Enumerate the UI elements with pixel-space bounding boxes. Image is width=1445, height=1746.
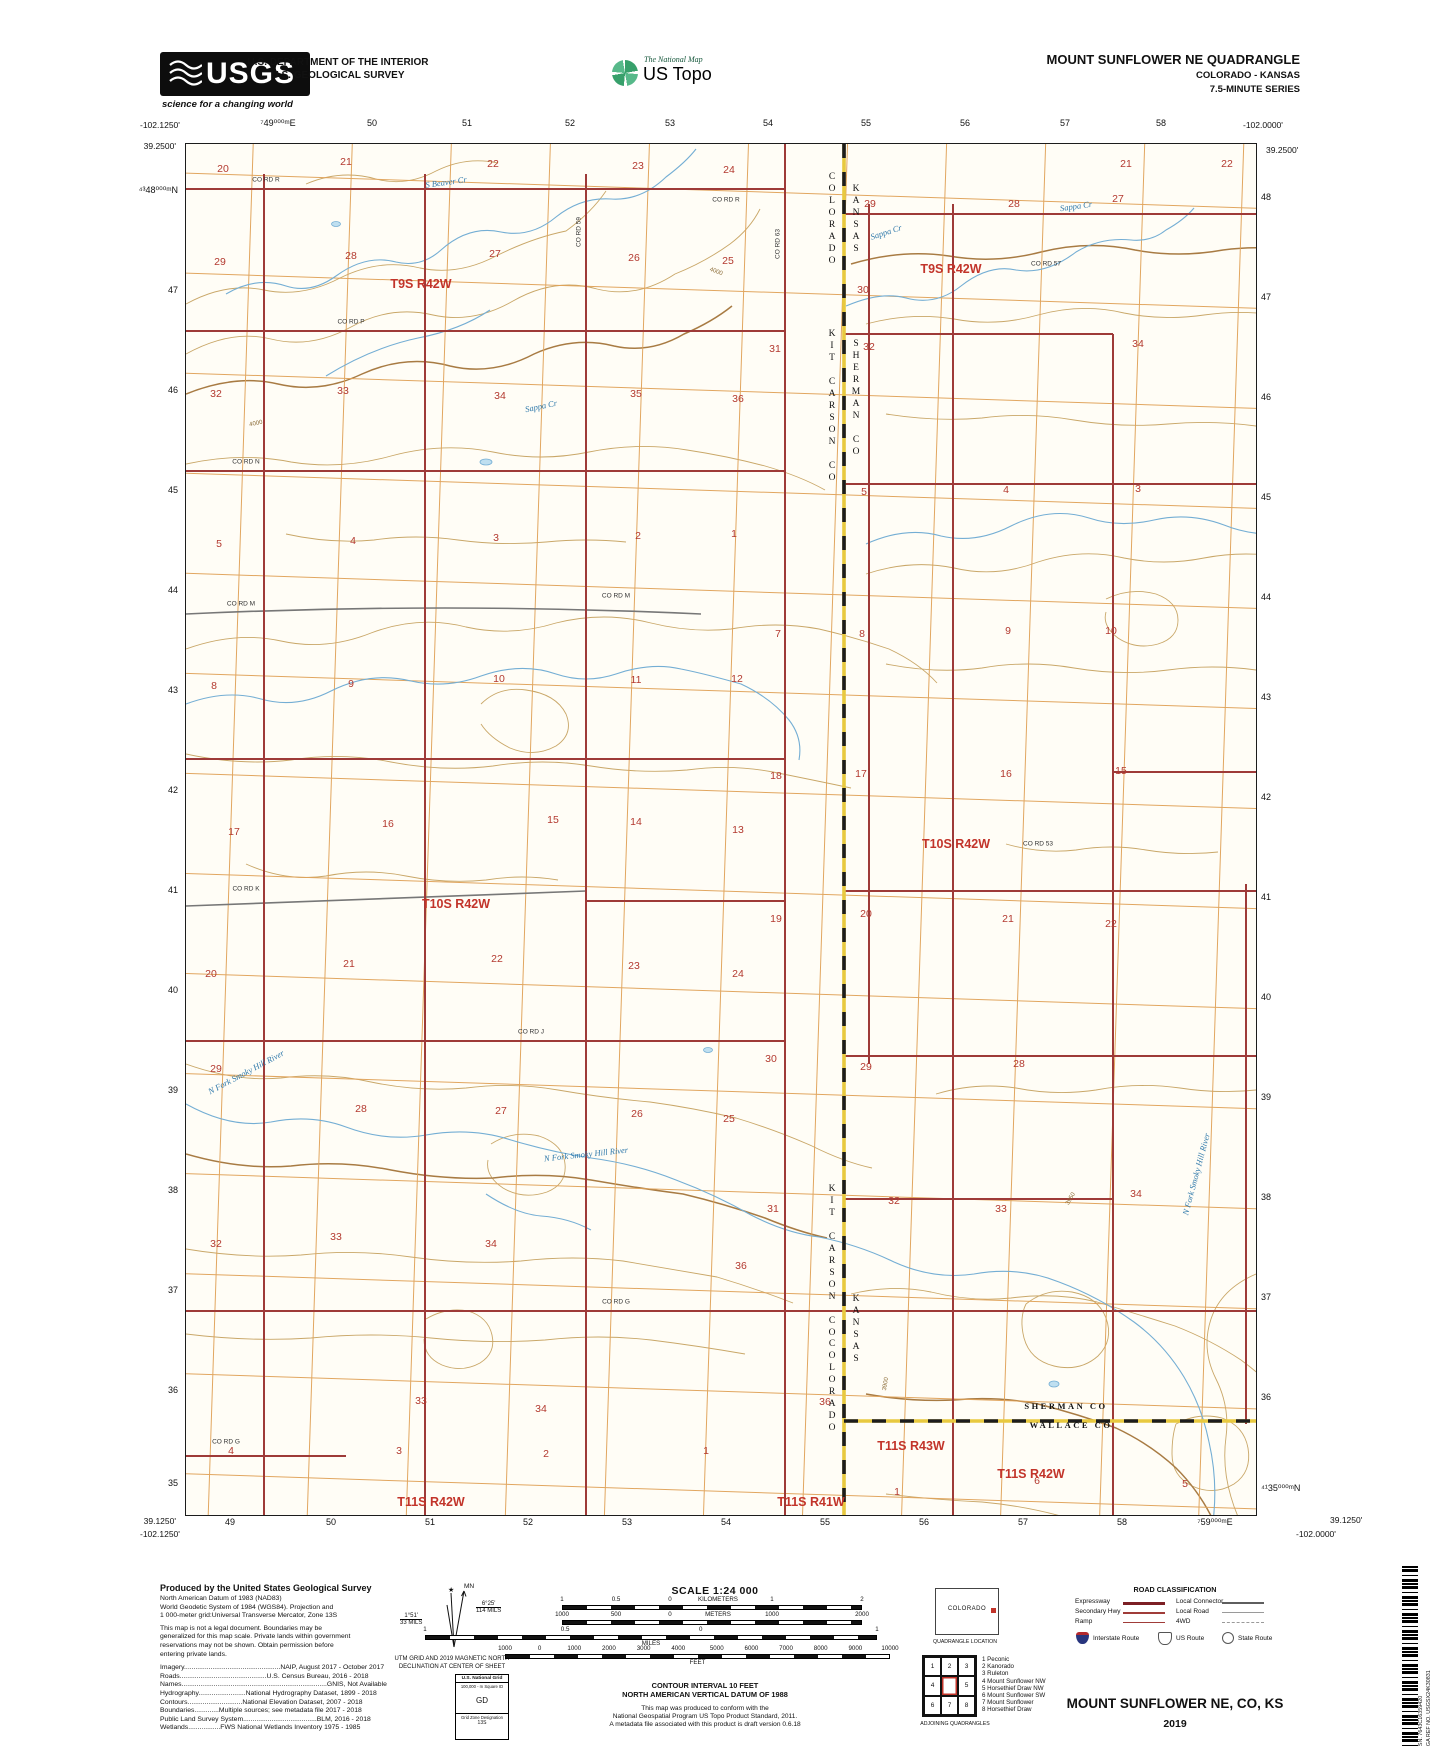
state-label: KANSAS bbox=[851, 184, 861, 256]
tr-label: T11S R41W bbox=[777, 1495, 844, 1509]
sec-label: 24 bbox=[732, 968, 744, 980]
county-label: SHERMAN CO bbox=[1024, 1401, 1107, 1411]
scale-tick: 500 bbox=[611, 1611, 621, 1618]
grid-label-left: 41 bbox=[106, 885, 178, 895]
scale-unit: FEET bbox=[690, 1659, 706, 1666]
usng-square-id: GD bbox=[456, 1696, 508, 1705]
usng-zone-label: Grid Zone Designation bbox=[456, 1713, 508, 1720]
sec-label: 5 bbox=[1182, 1478, 1188, 1490]
state-label: SHERMAN CO bbox=[851, 339, 861, 459]
int-shield-icon bbox=[1076, 1632, 1089, 1644]
sec-label: 29 bbox=[210, 1063, 222, 1075]
road-label: CO RD R bbox=[252, 177, 279, 184]
adjoining-quad-name: 4 Mount Sunflower NW bbox=[982, 1678, 1092, 1685]
sec-label: 5 bbox=[861, 486, 867, 498]
sec-label: 36 bbox=[735, 1260, 747, 1272]
grid-label-bottom: 52 bbox=[523, 1517, 533, 1527]
grid-label-right: 43 bbox=[1261, 692, 1271, 702]
scale-tick: 0 bbox=[668, 1611, 671, 1618]
conformance-line: National Geospatial Program US Topo Prod… bbox=[505, 1713, 905, 1721]
grid-label-left: 44 bbox=[106, 585, 178, 595]
state-label: KIT CARSON CO bbox=[827, 1184, 837, 1340]
road-classification-title: ROAD CLASSIFICATION bbox=[1075, 1585, 1275, 1594]
adjoining-cell: 5 bbox=[958, 1676, 975, 1695]
state-name: COLORADO bbox=[936, 1606, 998, 1612]
road-class-row: Expressway bbox=[1075, 1598, 1165, 1608]
grid-label-bottom: 49 bbox=[225, 1517, 235, 1527]
grid-label-bottom: 57 bbox=[1018, 1517, 1028, 1527]
sec-label: 4 bbox=[350, 535, 356, 547]
grid-label-right: 39 bbox=[1261, 1092, 1271, 1102]
road-label: CO RD K bbox=[232, 886, 259, 893]
road-class-sample-fourwd bbox=[1222, 1622, 1264, 1623]
scale-tick: 0 bbox=[699, 1626, 702, 1633]
grid-label-top: 58 bbox=[1156, 118, 1166, 128]
sec-label: 11 bbox=[631, 674, 642, 686]
grid-label-left: 46 bbox=[106, 385, 178, 395]
road-label: CO RD P bbox=[337, 319, 364, 326]
grid-label-left: 35 bbox=[106, 1478, 178, 1488]
adjoining-quad-name: 3 Ruleton bbox=[982, 1670, 1092, 1677]
scale-tick: 6000 bbox=[745, 1645, 759, 1652]
state-location-box: COLORADO bbox=[935, 1588, 999, 1635]
state-route-shield-item: State Route bbox=[1222, 1632, 1272, 1644]
sec-label: 19 bbox=[770, 913, 782, 925]
scale-tick: 4000 bbox=[671, 1645, 685, 1652]
sec-label: 1 bbox=[703, 1445, 709, 1457]
road-class-row: Local Road bbox=[1176, 1608, 1264, 1618]
sec-label: 29 bbox=[864, 198, 876, 210]
shield-label: Interstate Route bbox=[1093, 1635, 1139, 1642]
road-class-label: Secondary Hwy bbox=[1075, 1608, 1121, 1615]
dept-line1: U.S. DEPARTMENT OF THE INTERIOR bbox=[238, 56, 438, 69]
quad-series: 7.5-MINUTE SERIES bbox=[940, 84, 1300, 95]
road-label: CO RD G bbox=[602, 1299, 630, 1306]
scale-unit: KILOMETERS bbox=[698, 1596, 738, 1603]
grid-label-left: 39 bbox=[106, 1085, 178, 1095]
tr-label: T9S R42W bbox=[920, 262, 981, 276]
grid-label-bottom: 55 bbox=[820, 1517, 830, 1527]
usgs-tagline: science for a changing world bbox=[162, 99, 293, 110]
quad-location-marker bbox=[991, 1608, 996, 1613]
sec-label: 28 bbox=[345, 250, 357, 262]
usng-title: U.S. National Grid bbox=[456, 1675, 508, 1683]
scale-tick: 1 bbox=[875, 1626, 878, 1633]
int-route-shield-item: Interstate Route bbox=[1076, 1632, 1139, 1644]
scale-tick: 10000 bbox=[881, 1645, 898, 1652]
grid-label-bottom: 56 bbox=[919, 1517, 929, 1527]
sec-label: 26 bbox=[631, 1108, 643, 1120]
state-label: COLORADO bbox=[827, 172, 837, 268]
sec-label: 33 bbox=[415, 1395, 427, 1407]
road-class-row: Secondary Hwy bbox=[1075, 1608, 1165, 1618]
svg-text:★: ★ bbox=[448, 1586, 454, 1594]
sec-label: 30 bbox=[857, 284, 869, 296]
sec-label: 3 bbox=[1135, 483, 1141, 495]
sec-label: 21 bbox=[343, 958, 355, 970]
sec-label: 2 bbox=[543, 1448, 549, 1460]
road-class-sample-ramp bbox=[1123, 1622, 1165, 1623]
state-label: KIT CARSON CO bbox=[827, 329, 837, 485]
sec-label: 4 bbox=[1003, 484, 1009, 496]
grid-label-left: 43 bbox=[106, 685, 178, 695]
adjoining-cell: 8 bbox=[958, 1696, 975, 1715]
water-label: N Fork Smoky Hill River bbox=[543, 1145, 628, 1164]
quad-name: MOUNT SUNFLOWER NE QUADRANGLE bbox=[940, 52, 1300, 67]
grid-label-right: 48 bbox=[1261, 192, 1271, 202]
corner-tr-lon: -102.0000' bbox=[1243, 120, 1283, 130]
road-class-sample-secondary bbox=[1123, 1612, 1165, 1614]
grid-label-right: 40 bbox=[1261, 992, 1271, 1002]
grid-label-left: 38 bbox=[106, 1185, 178, 1195]
scale-bar-miles: 10.501MILES bbox=[425, 1626, 877, 1646]
adjoining-quad-name: 2 Kanorado bbox=[982, 1663, 1092, 1670]
water-label: Sappa Cr bbox=[524, 398, 558, 415]
grid-label-bottom: 54 bbox=[721, 1517, 731, 1527]
shield-label: US Route bbox=[1176, 1635, 1204, 1642]
sec-label: 23 bbox=[628, 960, 640, 972]
road-class-label: 4WD bbox=[1176, 1618, 1190, 1625]
scale-tick: 0 bbox=[668, 1596, 671, 1603]
state-label: KANSAS bbox=[851, 1294, 861, 1366]
sec-label: 32 bbox=[210, 388, 222, 400]
scale-bar-line bbox=[562, 1620, 862, 1626]
barcode-nsn: NSN. 7643C16359420 bbox=[1418, 1696, 1424, 1746]
grid-label-right: 41 bbox=[1261, 892, 1271, 902]
barcode bbox=[1402, 1566, 1418, 1746]
scale-tick: 8000 bbox=[814, 1645, 828, 1652]
sec-label: 17 bbox=[855, 768, 867, 780]
sec-label: 18 bbox=[770, 770, 782, 782]
road-label: CO RD 63 bbox=[775, 229, 782, 259]
road-class-row: Ramp bbox=[1075, 1618, 1165, 1628]
sheet-title-block: MOUNT SUNFLOWER NE, CO, KS 2019 bbox=[1060, 1696, 1290, 1730]
sheet-year: 2019 bbox=[1060, 1718, 1290, 1730]
grid-label-bottom: 50 bbox=[326, 1517, 336, 1527]
data-source-line: Names...................................… bbox=[160, 1681, 470, 1690]
sec-label: 34 bbox=[494, 390, 506, 402]
sec-label: 35 bbox=[630, 388, 642, 400]
corner-br-lat: 39.1250' bbox=[1330, 1515, 1362, 1525]
grid-label-top: 57 bbox=[1060, 118, 1070, 128]
scale-tick: 0 bbox=[538, 1645, 541, 1652]
scale-tick: 3000 bbox=[637, 1645, 651, 1652]
sec-label: 17 bbox=[228, 826, 240, 838]
sec-label: 22 bbox=[1105, 918, 1117, 930]
sec-label: 5 bbox=[216, 538, 222, 550]
sec-label: 3 bbox=[493, 532, 499, 544]
grid-label-top: 54 bbox=[763, 118, 773, 128]
grid-label-left: 47 bbox=[106, 285, 178, 295]
sec-label: 28 bbox=[1013, 1058, 1025, 1070]
sec-label: 23 bbox=[632, 160, 644, 172]
sec-label: 34 bbox=[535, 1403, 547, 1415]
water-label: Sappa Cr bbox=[869, 222, 903, 242]
usng-zone: 13S bbox=[456, 1720, 508, 1726]
road-class-sample-local bbox=[1222, 1612, 1264, 1613]
contour-interval-note: CONTOUR INTERVAL 10 FEET NORTH AMERICAN … bbox=[505, 1681, 905, 1699]
corner-br-lon: -102.0000' bbox=[1296, 1529, 1336, 1539]
sec-label: 26 bbox=[628, 252, 640, 264]
tr-label: T10S R42W bbox=[922, 837, 990, 851]
water-label: S Beaver Cr bbox=[425, 174, 468, 190]
sec-label: 9 bbox=[348, 678, 354, 690]
scale-tick: 9000 bbox=[848, 1645, 862, 1652]
gn-declination-value: 1°51' 33 MILS bbox=[400, 1613, 422, 1626]
sec-label: 15 bbox=[547, 814, 559, 826]
quad-states: COLORADO - KANSAS bbox=[940, 70, 1300, 81]
conformance-line: A metadata file associated with this pro… bbox=[505, 1721, 905, 1729]
scale-tick: 1000 bbox=[555, 1611, 569, 1618]
barcode-nga-ref: NGA REF NO. USGSX24K30831 bbox=[1426, 1670, 1432, 1746]
road-label: CO RD R bbox=[712, 197, 739, 204]
scale-tick: 5000 bbox=[710, 1645, 724, 1652]
adjoining-quad-name: 5 Horsethief Draw NW bbox=[982, 1685, 1092, 1692]
usgs-topo-sheet: USGS science for a changing world U.S. D… bbox=[0, 0, 1445, 1746]
grid-label-top: 51 bbox=[462, 118, 472, 128]
grid-label-left: ⁴³48⁰⁰⁰ᵐN bbox=[106, 185, 178, 196]
sec-label: 16 bbox=[1000, 768, 1012, 780]
sec-label: 4 bbox=[228, 1445, 234, 1457]
sec-label: 29 bbox=[860, 1061, 872, 1073]
sec-label: 34 bbox=[485, 1238, 497, 1250]
scale-tick: 0.5 bbox=[612, 1596, 621, 1603]
scale-tick: 1 bbox=[770, 1596, 773, 1603]
sec-label: 31 bbox=[767, 1203, 779, 1215]
sec-label: 25 bbox=[722, 255, 734, 267]
road-label: CO RD 57 bbox=[1031, 261, 1061, 268]
conformance-line: This map was produced to conform with th… bbox=[505, 1705, 905, 1713]
adjoining-cell: 7 bbox=[941, 1696, 958, 1715]
grid-label-top: 55 bbox=[861, 118, 871, 128]
county-label: WALLACE CO bbox=[1030, 1420, 1113, 1430]
data-source-line: Boundaries.............Multiple sources;… bbox=[160, 1707, 470, 1716]
national-map-icon bbox=[612, 60, 638, 86]
sec-label: 10 bbox=[1105, 625, 1117, 637]
sec-label: 8 bbox=[211, 680, 217, 692]
grid-label-right: ⁴¹35⁰⁰⁰ᵐN bbox=[1261, 1483, 1300, 1494]
scale-tick: 2 bbox=[860, 1596, 863, 1603]
elev-label: 3900 bbox=[882, 1377, 890, 1391]
elev-label: 4000 bbox=[249, 420, 263, 429]
sec-label: 30 bbox=[765, 1053, 777, 1065]
grid-label-right: 36 bbox=[1261, 1392, 1271, 1402]
national-map-script: The National Map bbox=[644, 55, 703, 64]
scale-bar-feet: 1000010002000300040005000600070008000900… bbox=[505, 1645, 890, 1665]
sec-label: 27 bbox=[495, 1105, 507, 1117]
data-source-line: Hydrography.........................Nati… bbox=[160, 1690, 470, 1699]
grid-label-left: 42 bbox=[106, 785, 178, 795]
scale-tick: 0.5 bbox=[561, 1626, 570, 1633]
quadrangle-title-block: MOUNT SUNFLOWER NE QUADRANGLE COLORADO -… bbox=[940, 52, 1300, 95]
grid-label-right: 37 bbox=[1261, 1292, 1271, 1302]
road-label: CO RD N bbox=[232, 459, 259, 466]
magnetic-north-label: MN bbox=[464, 1583, 474, 1590]
grid-label-top: 56 bbox=[960, 118, 970, 128]
state-shield-icon bbox=[1222, 1632, 1234, 1644]
grid-label-right: 42 bbox=[1261, 792, 1271, 802]
sec-label: 32 bbox=[863, 341, 875, 353]
conformance-note: This map was produced to conform with th… bbox=[505, 1705, 905, 1730]
us-topo-logo-text: US Topo bbox=[643, 64, 712, 85]
road-class-sample-expressway bbox=[1123, 1602, 1165, 1605]
road-class-sample-connector bbox=[1222, 1602, 1264, 1604]
sheet-title: MOUNT SUNFLOWER NE, CO, KS bbox=[1060, 1696, 1290, 1711]
map-area: 2021222324212229282729282726253132343032… bbox=[185, 143, 1257, 1516]
us-shield-icon bbox=[1158, 1632, 1172, 1645]
sec-label: 27 bbox=[1112, 193, 1124, 205]
road-label: CO RD J bbox=[518, 1029, 544, 1036]
sec-label: 14 bbox=[630, 816, 642, 828]
sec-label: 32 bbox=[888, 1195, 900, 1207]
sec-label: 9 bbox=[1005, 625, 1011, 637]
adjoining-cell: 4 bbox=[924, 1676, 941, 1695]
grid-label-right: 47 bbox=[1261, 292, 1271, 302]
grid-label-bottom: 51 bbox=[425, 1517, 435, 1527]
sec-label: 22 bbox=[1221, 158, 1233, 170]
sec-label: 12 bbox=[731, 673, 743, 685]
sec-label: 1 bbox=[731, 528, 737, 540]
adjoining-cell: 6 bbox=[924, 1696, 941, 1715]
tr-label: T11S R43W bbox=[877, 1439, 944, 1453]
adjoining-quad-name: 1 Peconic bbox=[982, 1656, 1092, 1663]
road-class-label: Ramp bbox=[1075, 1618, 1092, 1625]
route-shields: Interstate RouteUS RouteState Route bbox=[1076, 1632, 1336, 1646]
usng-square-id-label: 100,000 - m Square ID bbox=[456, 1684, 508, 1689]
road-class-label: Local Connector bbox=[1176, 1598, 1223, 1605]
usgs-wave-icon bbox=[168, 57, 202, 92]
sec-label: 10 bbox=[493, 673, 505, 685]
water-label: N Fork Smoky Hill River bbox=[1180, 1132, 1212, 1216]
sec-label: 20 bbox=[217, 163, 229, 175]
road-class-label: Expressway bbox=[1075, 1598, 1110, 1605]
sec-label: 13 bbox=[732, 824, 744, 836]
corner-tr-lat: 39.2500' bbox=[1266, 145, 1298, 155]
corner-bl-lon: -102.1250' bbox=[140, 1529, 180, 1539]
road-label: CO RD G bbox=[212, 1439, 240, 1446]
grid-label-right: 44 bbox=[1261, 592, 1271, 602]
sec-label: 2 bbox=[635, 530, 641, 542]
sec-label: 34 bbox=[1132, 338, 1144, 350]
adjoining-quads-grid: 12345678 bbox=[922, 1655, 977, 1717]
sec-label: 31 bbox=[769, 343, 781, 355]
state-label: COLORADO bbox=[827, 1339, 837, 1435]
data-source-line: Contours.............................Nat… bbox=[160, 1699, 470, 1708]
sec-label: 21 bbox=[1002, 913, 1014, 925]
sec-label: 33 bbox=[330, 1231, 342, 1243]
sec-label: 22 bbox=[487, 158, 499, 170]
grid-label-left: 40 bbox=[106, 985, 178, 995]
sec-label: 27 bbox=[489, 248, 501, 260]
road-class-row: 4WD bbox=[1176, 1618, 1264, 1628]
sec-label: 25 bbox=[723, 1113, 735, 1125]
elev-label: 4000 bbox=[709, 267, 724, 277]
road-class-label: Local Road bbox=[1176, 1608, 1209, 1615]
adjoining-cell-current bbox=[941, 1676, 958, 1695]
map-label-layer: 2021222324212229282729282726253132343032… bbox=[186, 144, 1256, 1515]
data-source-line: Roads...................................… bbox=[160, 1673, 470, 1682]
credits-sources: Imagery.................................… bbox=[160, 1664, 470, 1733]
sec-label: 34 bbox=[1130, 1188, 1142, 1200]
scale-tick: 1 bbox=[423, 1626, 426, 1633]
elev-label: 3950 bbox=[1065, 1192, 1077, 1207]
grid-label-bottom: 58 bbox=[1117, 1517, 1127, 1527]
us-route-shield-item: US Route bbox=[1158, 1632, 1204, 1645]
scale-unit: METERS bbox=[705, 1611, 731, 1618]
sec-label: 36 bbox=[732, 393, 744, 405]
adjoining-quads-caption: ADJOINING QUADRANGLES bbox=[895, 1721, 1015, 1727]
mn-declination-value: 6°25' 114 MILS bbox=[476, 1601, 501, 1614]
grid-label-left: 45 bbox=[106, 485, 178, 495]
department-heading: U.S. DEPARTMENT OF THE INTERIOR U.S. GEO… bbox=[238, 56, 438, 82]
road-label: CO RD M bbox=[602, 593, 630, 600]
grid-label-right: 46 bbox=[1261, 392, 1271, 402]
grid-label-top: 52 bbox=[565, 118, 575, 128]
water-label: Sappa Cr bbox=[1059, 199, 1092, 213]
corner-tl-lon: -102.1250' bbox=[140, 120, 180, 130]
tr-label: T9S R42W bbox=[390, 277, 451, 291]
sec-label: 15 bbox=[1115, 765, 1127, 777]
usng-box: U.S. National Grid 100,000 - m Square ID… bbox=[455, 1674, 509, 1740]
sec-label: 28 bbox=[1008, 198, 1020, 210]
data-source-line: Wetlands.................FWS National We… bbox=[160, 1724, 470, 1733]
adjoining-cell: 2 bbox=[941, 1657, 958, 1676]
corner-bl-lat: 39.1250' bbox=[100, 1516, 176, 1526]
sec-label: 33 bbox=[995, 1203, 1007, 1215]
tr-label: T10S R42W bbox=[422, 897, 490, 911]
road-label: CO RD 59 bbox=[576, 217, 583, 247]
adjoining-cell: 1 bbox=[924, 1657, 941, 1676]
sec-label: 7 bbox=[775, 628, 781, 640]
sec-label: 20 bbox=[860, 908, 872, 920]
sec-label: 28 bbox=[355, 1103, 367, 1115]
grid-label-top: 53 bbox=[665, 118, 675, 128]
corner-tl-lat: 39.2500' bbox=[100, 141, 176, 151]
grid-label-right: 45 bbox=[1261, 492, 1271, 502]
grid-label-left: 37 bbox=[106, 1285, 178, 1295]
sec-label: 3 bbox=[396, 1445, 402, 1457]
sec-label: 32 bbox=[210, 1238, 222, 1250]
sec-label: 20 bbox=[205, 968, 217, 980]
grid-label-top: 50 bbox=[367, 118, 377, 128]
grid-label-bottom: 53 bbox=[622, 1517, 632, 1527]
road-class-row: Local Connector bbox=[1176, 1598, 1264, 1608]
dept-line2: U.S. GEOLOGICAL SURVEY bbox=[238, 69, 438, 82]
quad-location-caption: QUADRANGLE LOCATION bbox=[905, 1639, 1025, 1645]
grid-label-left: 36 bbox=[106, 1385, 178, 1395]
scale-tick: 2000 bbox=[855, 1611, 869, 1618]
scale-tick: 7000 bbox=[779, 1645, 793, 1652]
scale-tick: 2000 bbox=[602, 1645, 616, 1652]
adjoining-cell: 3 bbox=[958, 1657, 975, 1676]
sec-label: 21 bbox=[1120, 158, 1132, 170]
grid-label-right: 38 bbox=[1261, 1192, 1271, 1202]
data-source-line: Public Land Survey System...............… bbox=[160, 1716, 470, 1725]
grid-label-top: ⁷49⁰⁰⁰ᵐE bbox=[260, 118, 295, 129]
sec-label: 16 bbox=[382, 818, 394, 830]
scale-tick: 1000 bbox=[765, 1611, 779, 1618]
tr-label: T11S R42W bbox=[997, 1467, 1064, 1481]
grid-label-bottom: ⁷59⁰⁰⁰ᵐE bbox=[1197, 1517, 1232, 1528]
sec-label: 33 bbox=[337, 385, 349, 397]
sec-label: 24 bbox=[723, 164, 735, 176]
scale-tick: 1 bbox=[560, 1596, 563, 1603]
shield-label: State Route bbox=[1238, 1635, 1272, 1642]
tr-label: T11S R42W bbox=[397, 1495, 464, 1509]
sec-label: 8 bbox=[859, 628, 865, 640]
sec-label: 22 bbox=[491, 953, 503, 965]
road-label: CO RD M bbox=[227, 601, 255, 608]
